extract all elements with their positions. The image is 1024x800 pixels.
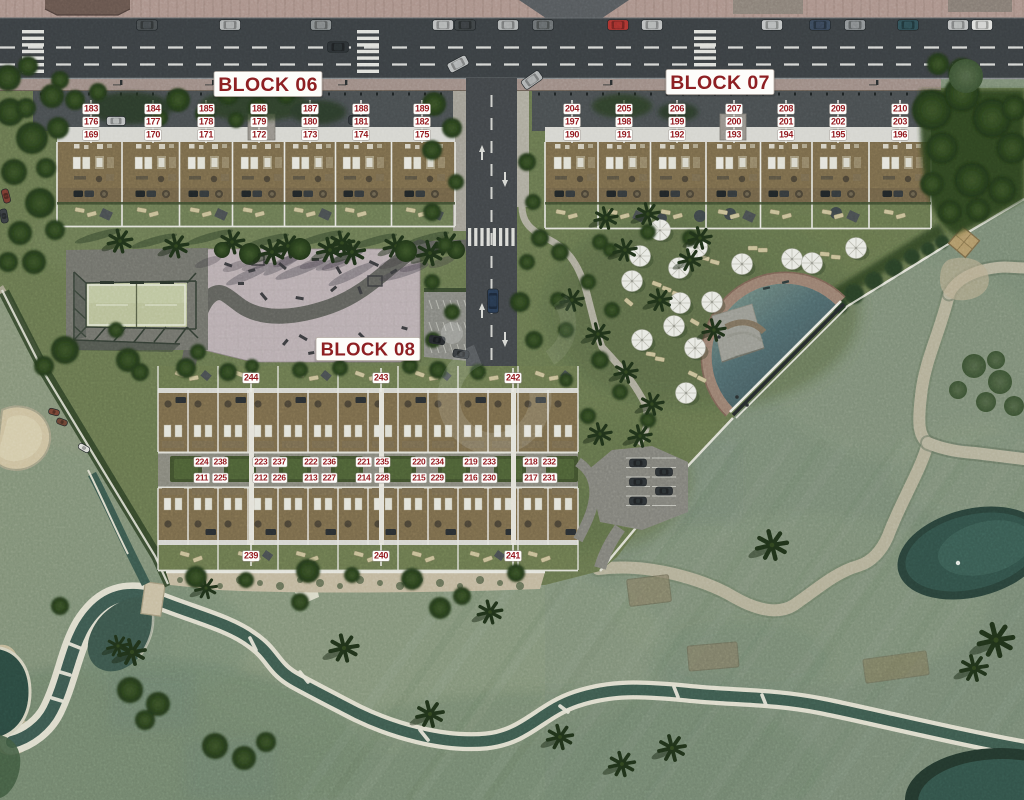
svg-text:231: 231 bbox=[543, 472, 557, 482]
svg-text:242: 242 bbox=[506, 373, 520, 383]
svg-text:225: 225 bbox=[214, 472, 228, 482]
svg-text:226: 226 bbox=[273, 472, 287, 482]
svg-text:198: 198 bbox=[617, 117, 631, 127]
svg-text:180: 180 bbox=[303, 117, 317, 127]
svg-text:176: 176 bbox=[84, 117, 98, 127]
svg-text:175: 175 bbox=[415, 130, 429, 140]
svg-text:219: 219 bbox=[464, 456, 478, 466]
svg-text:230: 230 bbox=[483, 472, 497, 482]
svg-text:194: 194 bbox=[779, 130, 793, 140]
svg-text:216: 216 bbox=[464, 472, 478, 482]
svg-text:212: 212 bbox=[254, 472, 268, 482]
svg-text:239: 239 bbox=[244, 551, 258, 561]
svg-text:240: 240 bbox=[374, 551, 388, 561]
svg-text:202: 202 bbox=[831, 117, 845, 127]
svg-text:193: 193 bbox=[727, 130, 741, 140]
svg-text:232: 232 bbox=[543, 456, 557, 466]
svg-text:178: 178 bbox=[199, 117, 213, 127]
svg-text:177: 177 bbox=[146, 117, 160, 127]
svg-text:228: 228 bbox=[376, 472, 390, 482]
svg-text:184: 184 bbox=[146, 104, 160, 114]
svg-text:213: 213 bbox=[304, 472, 318, 482]
svg-text:233: 233 bbox=[483, 456, 497, 466]
svg-text:195: 195 bbox=[831, 130, 845, 140]
svg-text:210: 210 bbox=[893, 104, 907, 114]
svg-text:187: 187 bbox=[303, 104, 317, 114]
svg-text:218: 218 bbox=[524, 456, 538, 466]
svg-text:182: 182 bbox=[415, 117, 429, 127]
svg-text:206: 206 bbox=[670, 104, 684, 114]
svg-text:217: 217 bbox=[524, 472, 538, 482]
svg-text:199: 199 bbox=[670, 117, 684, 127]
svg-text:186: 186 bbox=[252, 104, 266, 114]
svg-text:179: 179 bbox=[252, 117, 266, 127]
svg-text:173: 173 bbox=[303, 130, 317, 140]
svg-text:197: 197 bbox=[565, 117, 579, 127]
svg-text:227: 227 bbox=[323, 472, 337, 482]
svg-text:191: 191 bbox=[617, 130, 631, 140]
svg-text:221: 221 bbox=[357, 456, 371, 466]
svg-text:200: 200 bbox=[727, 117, 741, 127]
svg-text:190: 190 bbox=[565, 130, 579, 140]
svg-text:208: 208 bbox=[779, 104, 793, 114]
svg-text:189: 189 bbox=[415, 104, 429, 114]
svg-text:172: 172 bbox=[252, 130, 266, 140]
svg-text:170: 170 bbox=[146, 130, 160, 140]
svg-text:205: 205 bbox=[617, 104, 631, 114]
svg-text:223: 223 bbox=[254, 456, 268, 466]
svg-text:238: 238 bbox=[214, 456, 228, 466]
svg-text:222: 222 bbox=[304, 456, 318, 466]
svg-text:203: 203 bbox=[893, 117, 907, 127]
svg-text:236: 236 bbox=[323, 456, 337, 466]
svg-text:174: 174 bbox=[354, 130, 368, 140]
svg-text:192: 192 bbox=[670, 130, 684, 140]
svg-text:185: 185 bbox=[199, 104, 213, 114]
svg-text:234: 234 bbox=[431, 456, 445, 466]
svg-text:220: 220 bbox=[412, 456, 426, 466]
svg-text:244: 244 bbox=[244, 373, 258, 383]
svg-text:201: 201 bbox=[779, 117, 793, 127]
svg-text:241: 241 bbox=[506, 551, 520, 561]
svg-text:196: 196 bbox=[893, 130, 907, 140]
svg-text:211: 211 bbox=[195, 472, 208, 482]
svg-text:BLOCK 08: BLOCK 08 bbox=[321, 339, 416, 360]
svg-text:BLOCK 07: BLOCK 07 bbox=[670, 72, 770, 94]
svg-text:237: 237 bbox=[273, 456, 287, 466]
svg-text:243: 243 bbox=[374, 373, 388, 383]
svg-text:BLOCK 06: BLOCK 06 bbox=[218, 74, 318, 96]
svg-text:204: 204 bbox=[565, 104, 579, 114]
svg-text:215: 215 bbox=[412, 472, 426, 482]
svg-text:183: 183 bbox=[84, 104, 98, 114]
svg-text:171: 171 bbox=[199, 130, 213, 140]
svg-text:181: 181 bbox=[354, 117, 368, 127]
svg-text:224: 224 bbox=[195, 456, 209, 466]
svg-text:169: 169 bbox=[84, 130, 98, 140]
svg-text:214: 214 bbox=[357, 472, 371, 482]
svg-text:235: 235 bbox=[376, 456, 390, 466]
svg-text:188: 188 bbox=[354, 104, 368, 114]
svg-text:207: 207 bbox=[727, 104, 741, 114]
svg-text:209: 209 bbox=[831, 104, 845, 114]
svg-text:229: 229 bbox=[431, 472, 445, 482]
